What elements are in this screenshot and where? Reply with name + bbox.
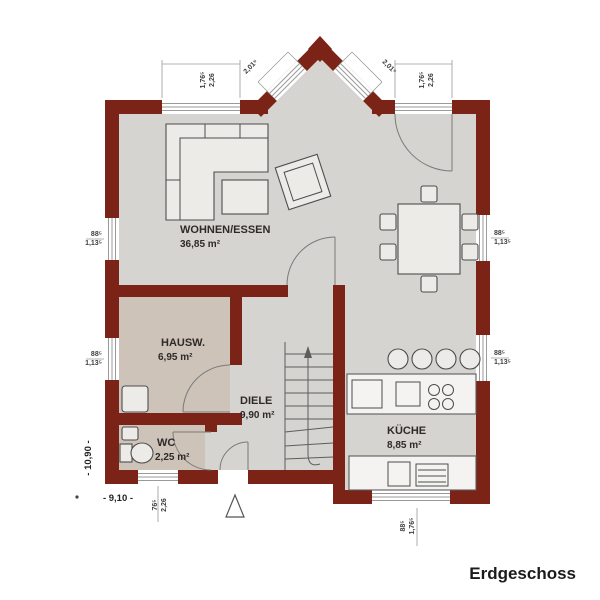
svg-text:88⁵: 88⁵ bbox=[400, 520, 407, 531]
dim-window-wc: 76⁵ 2,26 bbox=[152, 498, 168, 512]
dining-chair bbox=[380, 244, 396, 260]
dining-chair bbox=[380, 214, 396, 230]
svg-text:1,76⁵: 1,76⁵ bbox=[409, 518, 416, 535]
room-label-wc: WC bbox=[157, 437, 175, 449]
room-area-wc: 2,25 m² bbox=[155, 452, 190, 463]
wall-interior-horizontal bbox=[119, 285, 288, 297]
wall-hausw-diele-upper bbox=[230, 297, 242, 365]
dim-window-right-lower-2: 1,13⁵ bbox=[494, 359, 511, 366]
room-label-hausw: HAUSW. bbox=[161, 337, 205, 349]
kitchen-counter-bottom bbox=[349, 456, 476, 490]
toilet-tank bbox=[120, 444, 132, 462]
dim-window-right-upper-1: 88⁵ bbox=[494, 230, 505, 237]
room-label-kueche: KÜCHE bbox=[387, 424, 426, 437]
wall-left bbox=[105, 100, 119, 484]
svg-text:1,76⁵: 1,76⁵ bbox=[200, 72, 207, 89]
dim-window-top-right: 1,76⁵ 2,26 bbox=[419, 72, 435, 89]
dim-bay-left: 2,01⁵ bbox=[243, 59, 260, 76]
floor-plan-drawing: 1,76⁵ 2,26 1,76⁵ 2,26 2,01⁵ 2,01⁵ 88⁵ 1,… bbox=[0, 0, 600, 600]
dim-window-top-left: 1,76⁵ 2,26 bbox=[200, 72, 216, 89]
dim-window-right-upper-2: 1,13⁵ bbox=[494, 239, 511, 246]
kitchen-counter-top bbox=[347, 374, 476, 414]
svg-text:76⁵: 76⁵ bbox=[152, 499, 159, 510]
coffee-table bbox=[222, 180, 268, 214]
floor-plan-page: 1,76⁵ 2,26 1,76⁵ 2,26 2,01⁵ 2,01⁵ 88⁵ 1,… bbox=[0, 0, 600, 600]
room-label-wohnen-essen: WOHNEN/ESSEN bbox=[180, 224, 271, 236]
dim-overall-width: - 9,10 - bbox=[103, 493, 133, 504]
wall-kitchen-divider bbox=[333, 285, 345, 504]
room-area-wohnen-essen: 36,85 m² bbox=[180, 239, 221, 250]
room-area-hausw: 6,95 m² bbox=[158, 352, 193, 363]
dim-window-left-upper-2: 1,13⁵ bbox=[85, 240, 102, 247]
dining-chair bbox=[462, 244, 478, 260]
dim-window-left-lower-1: 88⁵ bbox=[91, 351, 102, 358]
dim-marker bbox=[75, 495, 78, 498]
dining-chair bbox=[421, 276, 437, 292]
wall-wc-right bbox=[205, 425, 217, 432]
dining-chair bbox=[462, 214, 478, 230]
dim-window-kitchen: 88⁵ 1,76⁵ bbox=[400, 518, 416, 535]
wall-right bbox=[476, 100, 490, 504]
svg-text:2,26: 2,26 bbox=[161, 498, 168, 512]
svg-text:2,26: 2,26 bbox=[209, 73, 216, 87]
entrance-opening bbox=[218, 470, 248, 484]
room-area-diele: 9,90 m² bbox=[240, 410, 275, 421]
toilet-bowl bbox=[131, 443, 153, 463]
entrance-triangle-icon bbox=[226, 495, 244, 517]
dim-window-left-lower-2: 1,13⁵ bbox=[85, 360, 102, 367]
dim-window-right-lower-1: 88⁵ bbox=[494, 350, 505, 357]
dining-table bbox=[398, 204, 460, 274]
room-label-diele: DIELE bbox=[240, 395, 272, 407]
wc-sink bbox=[122, 427, 138, 440]
dim-overall-height: - 10,90 - bbox=[83, 440, 94, 475]
wall-hausw-wc bbox=[119, 413, 242, 425]
washing-machine bbox=[122, 386, 148, 412]
svg-text:1,76⁵: 1,76⁵ bbox=[419, 72, 426, 89]
dim-window-left-upper-1: 88⁵ bbox=[91, 231, 102, 238]
room-area-kueche: 8,85 m² bbox=[387, 440, 422, 451]
page-title: Erdgeschoss bbox=[469, 564, 576, 583]
svg-text:2,26: 2,26 bbox=[428, 73, 435, 87]
dining-chair bbox=[421, 186, 437, 202]
